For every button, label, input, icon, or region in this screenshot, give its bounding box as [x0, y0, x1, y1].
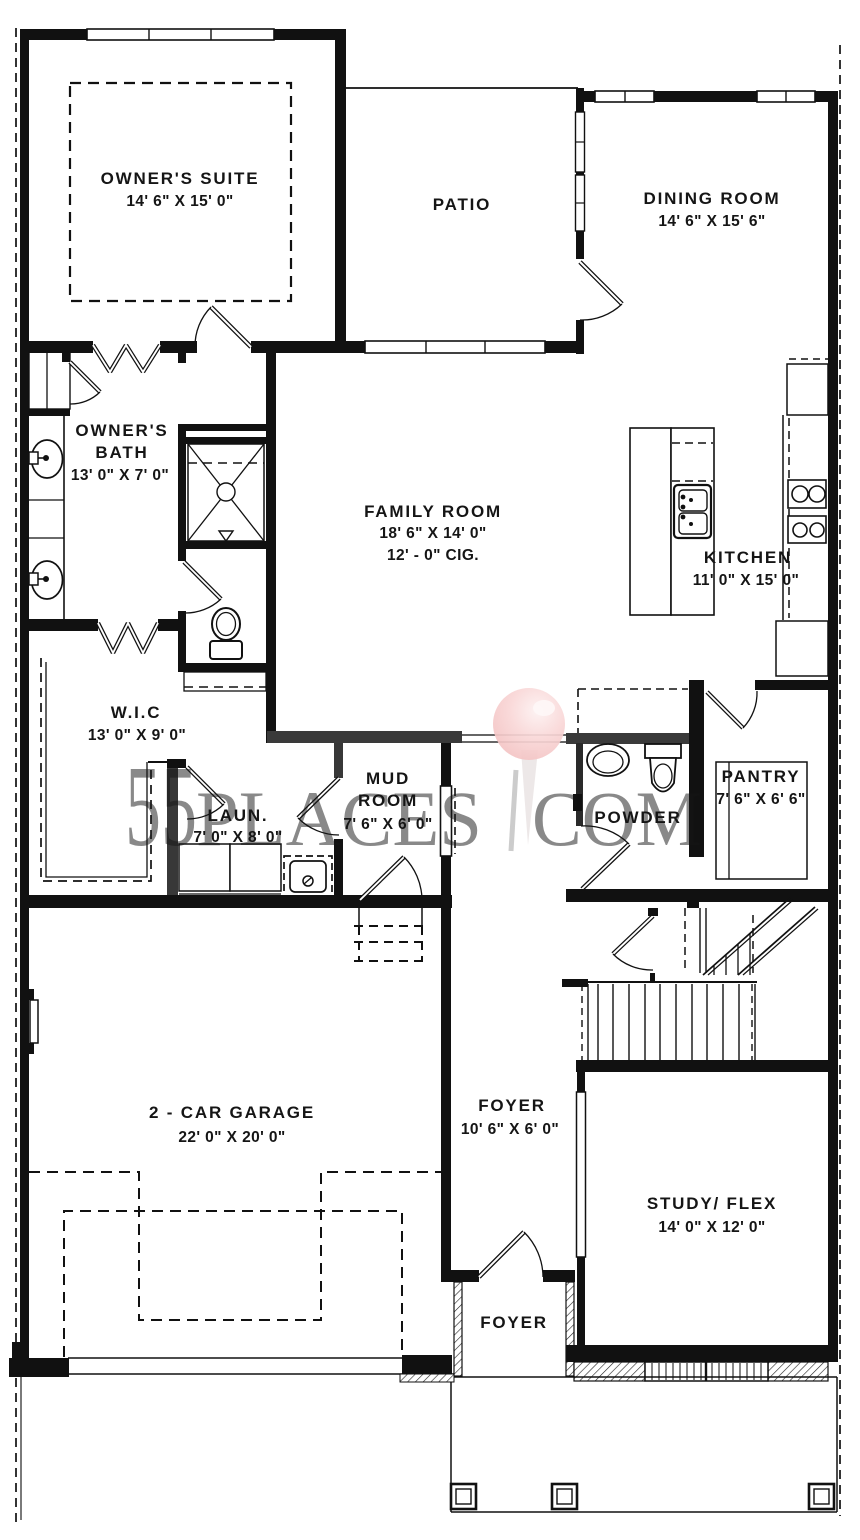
svg-text:22' 0" X 20' 0": 22' 0" X 20' 0": [178, 1129, 285, 1146]
svg-text:13' 0" X 9' 0": 13' 0" X 9' 0": [88, 727, 186, 744]
svg-text:W.I.C: W.I.C: [111, 703, 162, 722]
svg-text:55: 55: [125, 743, 197, 870]
svg-text:ROOM: ROOM: [358, 791, 418, 810]
svg-text:7' 6" X 6' 0": 7' 6" X 6' 0": [343, 816, 432, 833]
svg-text:12' - 0" CIG.: 12' - 0" CIG.: [387, 547, 479, 564]
svg-text:OWNER'S SUITE: OWNER'S SUITE: [101, 169, 260, 188]
svg-text:18' 6" X 14' 0": 18' 6" X 14' 0": [379, 525, 486, 542]
svg-text:PATIO: PATIO: [433, 195, 491, 214]
svg-text:2 - CAR GARAGE: 2 - CAR GARAGE: [149, 1103, 315, 1122]
svg-text:FAMILY ROOM: FAMILY ROOM: [364, 502, 502, 521]
svg-text:STUDY/ FLEX: STUDY/ FLEX: [647, 1194, 777, 1213]
svg-text:7' 6" X 6' 6": 7' 6" X 6' 6": [716, 791, 805, 808]
svg-text:10' 6" X 6' 0": 10' 6" X 6' 0": [461, 1121, 559, 1138]
svg-text:14' 6" X 15' 0": 14' 6" X 15' 0": [126, 193, 233, 210]
svg-text:POWDER: POWDER: [594, 808, 681, 827]
svg-text:11' 0" X 15' 0": 11' 0" X 15' 0": [693, 572, 800, 589]
svg-text:14' 0" X 12' 0": 14' 0" X 12' 0": [658, 1219, 765, 1236]
svg-text:MUD: MUD: [366, 769, 410, 788]
svg-text:KITCHEN: KITCHEN: [704, 548, 792, 567]
svg-text:DINING ROOM: DINING ROOM: [644, 189, 781, 208]
svg-text:FOYER: FOYER: [478, 1096, 546, 1115]
svg-text:7' 0" X 8' 0": 7' 0" X 8' 0": [193, 829, 282, 846]
svg-text:13' 0" X 7' 0": 13' 0" X 7' 0": [71, 467, 169, 484]
svg-text:FOYER: FOYER: [480, 1313, 548, 1332]
svg-text:OWNER'S: OWNER'S: [75, 421, 168, 440]
svg-text:LAUN.: LAUN.: [208, 806, 269, 825]
svg-text:BATH: BATH: [95, 443, 148, 462]
svg-text:14' 6" X 15' 6": 14' 6" X 15' 6": [658, 213, 765, 230]
svg-text:PANTRY: PANTRY: [722, 767, 801, 786]
